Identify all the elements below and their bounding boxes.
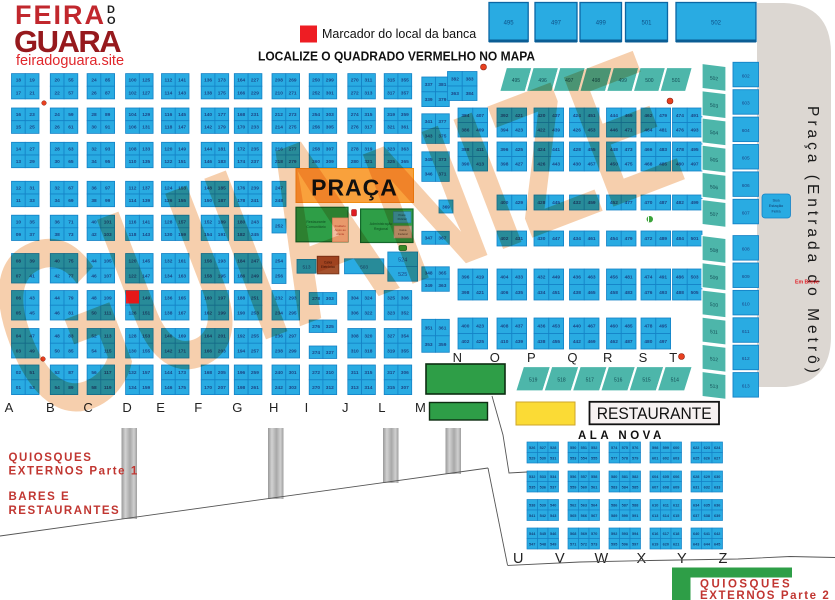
svg-text:571: 571 <box>570 543 576 547</box>
svg-text:497: 497 <box>691 162 699 168</box>
svg-text:547: 547 <box>529 543 535 547</box>
svg-text:604: 604 <box>652 475 659 479</box>
svg-text:628: 628 <box>693 475 699 479</box>
svg-text:513: 513 <box>710 383 719 390</box>
svg-text:BARES E: BARES E <box>9 491 71 503</box>
svg-text:517: 517 <box>586 378 595 384</box>
svg-text:143: 143 <box>178 90 186 96</box>
svg-text:630: 630 <box>714 475 720 479</box>
svg-text:400: 400 <box>461 324 469 330</box>
svg-text:453: 453 <box>552 324 560 330</box>
svg-text:612: 612 <box>673 504 679 508</box>
svg-text:618: 618 <box>673 532 679 536</box>
svg-text:497: 497 <box>551 21 562 27</box>
svg-text:487: 487 <box>625 339 633 345</box>
svg-text:563: 563 <box>581 504 587 508</box>
svg-text:638: 638 <box>704 514 710 518</box>
svg-text:435: 435 <box>515 290 523 296</box>
svg-text:505: 505 <box>691 290 699 296</box>
svg-text:474: 474 <box>644 275 652 281</box>
svg-text:501: 501 <box>641 21 652 27</box>
svg-text:13: 13 <box>16 159 22 165</box>
svg-text:30: 30 <box>55 159 61 165</box>
svg-text:26: 26 <box>55 125 61 131</box>
svg-text:629: 629 <box>704 475 710 479</box>
svg-text:566: 566 <box>581 514 587 518</box>
svg-text:467: 467 <box>588 324 596 330</box>
svg-text:501: 501 <box>691 236 699 242</box>
svg-text:570: 570 <box>591 532 597 536</box>
svg-text:18: 18 <box>16 78 22 84</box>
svg-text:533: 533 <box>540 475 546 479</box>
svg-text:622: 622 <box>693 446 699 450</box>
svg-text:229: 229 <box>251 90 259 96</box>
svg-text:602: 602 <box>742 73 750 79</box>
svg-text:434: 434 <box>537 290 545 296</box>
svg-text:576: 576 <box>632 446 638 450</box>
svg-text:567: 567 <box>591 514 597 518</box>
svg-text:600: 600 <box>673 446 679 450</box>
svg-text:22: 22 <box>55 90 61 96</box>
svg-text:89: 89 <box>105 112 111 118</box>
svg-text:577: 577 <box>611 457 617 461</box>
svg-text:601: 601 <box>652 457 658 461</box>
svg-text:532: 532 <box>529 475 535 479</box>
svg-text:465: 465 <box>588 290 596 296</box>
svg-text:451: 451 <box>552 290 560 296</box>
svg-text:599: 599 <box>663 446 669 450</box>
svg-text:588: 588 <box>632 504 638 508</box>
svg-text:102: 102 <box>128 90 136 96</box>
svg-text:549: 549 <box>550 543 556 547</box>
svg-text:458: 458 <box>610 290 618 296</box>
svg-text:Em Breve: Em Breve <box>795 280 819 286</box>
svg-text:511: 511 <box>710 329 718 336</box>
svg-text:17: 17 <box>16 90 22 96</box>
svg-text:615: 615 <box>673 514 679 518</box>
svg-text:437: 437 <box>515 324 523 330</box>
svg-text:625: 625 <box>693 457 699 461</box>
svg-text:582: 582 <box>632 475 638 479</box>
svg-text:N: N <box>453 350 462 365</box>
svg-text:586: 586 <box>611 504 617 508</box>
svg-text:131: 131 <box>142 125 150 131</box>
svg-text:28: 28 <box>55 146 61 152</box>
svg-text:503: 503 <box>710 103 719 110</box>
svg-text:Q: Q <box>567 350 577 365</box>
svg-text:528: 528 <box>550 446 556 450</box>
svg-text:484: 484 <box>676 236 684 242</box>
svg-text:561: 561 <box>591 486 597 490</box>
svg-text:127: 127 <box>142 90 150 96</box>
svg-text:573: 573 <box>591 543 597 547</box>
svg-text:506: 506 <box>710 184 719 191</box>
svg-text:541: 541 <box>529 514 535 518</box>
svg-text:460: 460 <box>610 324 618 330</box>
svg-text:639: 639 <box>714 514 720 518</box>
svg-text:Sua: Sua <box>772 198 780 203</box>
svg-text:620: 620 <box>663 543 669 547</box>
svg-text:116: 116 <box>165 112 173 118</box>
svg-text:559: 559 <box>570 486 576 490</box>
svg-text:501: 501 <box>672 78 681 84</box>
svg-text:O: O <box>490 350 500 365</box>
svg-text:491: 491 <box>691 113 699 119</box>
svg-text:166: 166 <box>237 90 245 96</box>
svg-text:512: 512 <box>710 356 719 363</box>
svg-text:474: 474 <box>676 113 684 119</box>
svg-text:423: 423 <box>476 324 484 330</box>
svg-text:546: 546 <box>550 532 556 536</box>
svg-text:112: 112 <box>165 78 173 84</box>
svg-text:550: 550 <box>570 446 576 450</box>
svg-text:545: 545 <box>540 532 546 536</box>
svg-text:313: 313 <box>364 90 372 96</box>
svg-text:502: 502 <box>711 21 722 27</box>
svg-text:596: 596 <box>622 543 628 547</box>
svg-text:125: 125 <box>142 78 150 84</box>
svg-text:529: 529 <box>529 457 535 461</box>
svg-text:481: 481 <box>625 275 633 281</box>
svg-text:315: 315 <box>364 370 372 376</box>
svg-text:469: 469 <box>588 339 596 345</box>
svg-text:608: 608 <box>742 247 750 253</box>
svg-text:632: 632 <box>704 486 710 490</box>
svg-text:436: 436 <box>573 275 581 281</box>
svg-text:Feira: Feira <box>771 209 781 214</box>
svg-text:495: 495 <box>691 147 699 153</box>
svg-text:623: 623 <box>704 446 710 450</box>
svg-text:606: 606 <box>742 183 750 189</box>
svg-text:503: 503 <box>691 275 699 281</box>
svg-text:502: 502 <box>710 75 719 82</box>
svg-text:617: 617 <box>663 532 669 536</box>
svg-text:23: 23 <box>29 112 35 118</box>
svg-text:575: 575 <box>622 446 628 450</box>
svg-text:518: 518 <box>557 378 566 384</box>
svg-text:607: 607 <box>652 486 658 490</box>
svg-text:118: 118 <box>165 125 173 131</box>
svg-text:311: 311 <box>351 370 359 376</box>
svg-text:514: 514 <box>671 378 680 384</box>
svg-text:410: 410 <box>500 339 508 345</box>
svg-text:93: 93 <box>105 146 111 152</box>
svg-text:594: 594 <box>632 532 639 536</box>
svg-text:578: 578 <box>622 457 628 461</box>
svg-text:584: 584 <box>622 486 629 490</box>
svg-text:feiradoguara.site: feiradoguara.site <box>16 53 124 69</box>
svg-text:438: 438 <box>573 290 581 296</box>
svg-text:605: 605 <box>742 156 750 162</box>
svg-text:509: 509 <box>710 275 719 282</box>
svg-text:495: 495 <box>504 21 515 27</box>
svg-text:537: 537 <box>550 486 556 490</box>
svg-text:562: 562 <box>570 504 576 508</box>
svg-text:25: 25 <box>29 125 35 131</box>
svg-text:542: 542 <box>540 514 546 518</box>
svg-text:85: 85 <box>105 78 111 84</box>
svg-text:580: 580 <box>611 475 617 479</box>
svg-text:587: 587 <box>622 504 628 508</box>
svg-text:307: 307 <box>401 385 409 391</box>
svg-text:28: 28 <box>91 112 97 118</box>
svg-text:S: S <box>639 350 648 365</box>
svg-text:57: 57 <box>68 90 74 96</box>
svg-text:621: 621 <box>673 543 679 547</box>
svg-text:145: 145 <box>178 112 186 118</box>
svg-text:15: 15 <box>16 125 22 131</box>
svg-text:624: 624 <box>714 446 721 450</box>
svg-text:637: 637 <box>693 514 699 518</box>
svg-text:593: 593 <box>622 532 628 536</box>
svg-text:486: 486 <box>676 275 684 281</box>
svg-text:616: 616 <box>652 532 658 536</box>
svg-text:314: 314 <box>364 385 372 391</box>
svg-text:565: 565 <box>570 514 576 518</box>
svg-text:489: 489 <box>659 236 667 242</box>
svg-text:476: 476 <box>644 290 652 296</box>
svg-text:548: 548 <box>540 543 546 547</box>
svg-text:544: 544 <box>529 532 536 536</box>
svg-text:558: 558 <box>591 475 597 479</box>
svg-text:640: 640 <box>693 532 699 536</box>
svg-text:V: V <box>555 551 565 567</box>
svg-text:H: H <box>269 400 278 415</box>
svg-text:555: 555 <box>591 457 597 461</box>
svg-text:Y: Y <box>677 551 687 567</box>
svg-text:598: 598 <box>652 446 658 450</box>
svg-text:I: I <box>305 400 309 415</box>
svg-text:227: 227 <box>251 78 259 84</box>
svg-text:645: 645 <box>714 543 720 547</box>
svg-text:317: 317 <box>387 370 395 376</box>
svg-text:361: 361 <box>438 325 446 331</box>
svg-text:438: 438 <box>537 339 545 345</box>
svg-text:634: 634 <box>693 504 700 508</box>
svg-text:A: A <box>5 400 14 415</box>
svg-text:552: 552 <box>591 446 597 450</box>
svg-text:497: 497 <box>659 339 667 345</box>
svg-text:539: 539 <box>540 504 546 508</box>
svg-text:272: 272 <box>351 90 359 96</box>
svg-text:485: 485 <box>625 324 633 330</box>
svg-text:X: X <box>637 551 647 567</box>
svg-text:635: 635 <box>704 504 710 508</box>
svg-text:553: 553 <box>570 457 576 461</box>
svg-text:27: 27 <box>29 146 35 152</box>
svg-text:609: 609 <box>742 274 750 280</box>
svg-text:175: 175 <box>218 90 226 96</box>
svg-text:530: 530 <box>540 457 546 461</box>
svg-text:456: 456 <box>610 275 618 281</box>
svg-text:29: 29 <box>29 159 35 165</box>
svg-text:619: 619 <box>652 543 658 547</box>
svg-text:106: 106 <box>128 125 136 131</box>
svg-text:455: 455 <box>552 339 560 345</box>
svg-text:M: M <box>415 400 426 415</box>
svg-text:21: 21 <box>29 90 35 96</box>
svg-text:527: 527 <box>540 446 546 450</box>
svg-text:535: 535 <box>529 486 535 490</box>
svg-text:12: 12 <box>16 185 22 191</box>
svg-text:59: 59 <box>68 112 74 118</box>
svg-text:560: 560 <box>581 486 587 490</box>
svg-text:583: 583 <box>611 486 617 490</box>
svg-text:643: 643 <box>693 543 699 547</box>
svg-text:488: 488 <box>676 290 684 296</box>
svg-text:436: 436 <box>537 324 545 330</box>
svg-text:493: 493 <box>691 128 699 134</box>
svg-text:612: 612 <box>742 356 750 362</box>
svg-text:462: 462 <box>610 339 618 345</box>
svg-text:554: 554 <box>581 457 588 461</box>
svg-text:440: 440 <box>573 324 581 330</box>
svg-text:507: 507 <box>710 211 719 218</box>
svg-text:408: 408 <box>500 324 508 330</box>
svg-text:24: 24 <box>55 112 61 118</box>
svg-text:585: 585 <box>632 486 638 490</box>
svg-text:641: 641 <box>704 532 710 536</box>
svg-text:140: 140 <box>204 112 212 118</box>
svg-text:557: 557 <box>581 475 587 479</box>
svg-text:164: 164 <box>237 78 245 84</box>
svg-text:568: 568 <box>570 532 576 536</box>
svg-text:311: 311 <box>365 78 373 84</box>
svg-text:Estação: Estação <box>769 203 784 208</box>
svg-text:613: 613 <box>742 384 750 390</box>
svg-text:516: 516 <box>614 378 623 384</box>
svg-text:270: 270 <box>351 78 359 84</box>
svg-text:312: 312 <box>326 385 334 391</box>
svg-text:504: 504 <box>710 130 719 137</box>
svg-text:EXTERNOS Parte 2: EXTERNOS Parte 2 <box>700 590 830 600</box>
svg-text:463: 463 <box>588 275 596 281</box>
svg-text:478: 478 <box>644 324 652 330</box>
svg-text:91: 91 <box>105 125 111 131</box>
svg-text:402: 402 <box>461 339 469 345</box>
svg-text:306: 306 <box>401 370 409 376</box>
svg-text:208: 208 <box>275 78 283 84</box>
svg-text:W: W <box>595 551 609 567</box>
svg-text:476: 476 <box>676 128 684 134</box>
svg-text:590: 590 <box>622 514 628 518</box>
svg-text:138: 138 <box>204 90 212 96</box>
svg-text:543: 543 <box>550 514 556 518</box>
svg-text:572: 572 <box>581 543 587 547</box>
svg-text:538: 538 <box>529 504 535 508</box>
svg-text:519: 519 <box>529 378 538 384</box>
svg-text:480: 480 <box>644 339 652 345</box>
svg-text:608: 608 <box>663 486 669 490</box>
svg-text:540: 540 <box>550 504 556 508</box>
svg-text:T: T <box>669 350 677 365</box>
svg-text:100: 100 <box>128 78 136 84</box>
svg-text:114: 114 <box>165 90 173 96</box>
svg-text:603: 603 <box>673 457 679 461</box>
svg-text:269: 269 <box>289 78 297 84</box>
svg-text:556: 556 <box>570 475 576 479</box>
svg-text:173: 173 <box>218 78 226 84</box>
svg-text:610: 610 <box>652 504 658 508</box>
svg-text:579: 579 <box>632 457 638 461</box>
svg-text:313: 313 <box>351 385 359 391</box>
svg-text:508: 508 <box>710 247 719 254</box>
svg-text:633: 633 <box>714 486 720 490</box>
svg-text:R: R <box>603 350 612 365</box>
svg-text:515: 515 <box>642 378 651 384</box>
svg-text:483: 483 <box>625 290 633 296</box>
svg-text:299: 299 <box>326 78 334 84</box>
svg-text:L: L <box>378 400 385 415</box>
svg-text:355: 355 <box>401 348 409 354</box>
svg-text:J: J <box>342 400 349 415</box>
svg-text:642: 642 <box>714 532 720 536</box>
svg-text:20: 20 <box>55 78 61 84</box>
svg-text:30: 30 <box>91 125 97 131</box>
svg-text:574: 574 <box>611 446 618 450</box>
svg-text:270: 270 <box>312 385 320 391</box>
svg-text:604: 604 <box>742 128 750 134</box>
svg-text:442: 442 <box>573 339 581 345</box>
svg-text:505: 505 <box>710 157 719 164</box>
svg-text:589: 589 <box>611 514 617 518</box>
svg-text:534: 534 <box>550 475 557 479</box>
svg-text:Praça (Entrada do Metrô): Praça (Entrada do Metrô) <box>804 106 821 377</box>
svg-text:510: 510 <box>710 302 719 309</box>
svg-text:551: 551 <box>581 446 587 450</box>
svg-text:606: 606 <box>673 475 679 479</box>
svg-text:359: 359 <box>438 342 446 348</box>
svg-text:355: 355 <box>401 78 409 84</box>
svg-text:Marcador do local da banca: Marcador do local da banca <box>322 27 476 41</box>
svg-text:603: 603 <box>742 101 750 107</box>
svg-text:613: 613 <box>652 514 658 518</box>
svg-text:26: 26 <box>91 90 97 96</box>
svg-text:592: 592 <box>611 532 617 536</box>
svg-text:425: 425 <box>476 339 484 345</box>
svg-text:581: 581 <box>622 475 628 479</box>
svg-text:87: 87 <box>105 90 111 96</box>
svg-text:353: 353 <box>425 342 433 348</box>
svg-text:55: 55 <box>68 78 74 84</box>
svg-text:595: 595 <box>611 543 617 547</box>
svg-text:526: 526 <box>529 446 535 450</box>
svg-text:491: 491 <box>659 275 667 281</box>
svg-text:315: 315 <box>387 385 395 391</box>
svg-text:611: 611 <box>663 504 669 508</box>
svg-text:14: 14 <box>16 146 22 152</box>
svg-text:65: 65 <box>68 159 74 165</box>
svg-text:RESTAURANTE: RESTAURANTE <box>597 405 712 423</box>
svg-text:16: 16 <box>16 112 22 118</box>
svg-text:564: 564 <box>591 504 598 508</box>
svg-text:136: 136 <box>204 78 212 84</box>
svg-text:61: 61 <box>68 125 74 131</box>
svg-text:QUIOSQUES: QUIOSQUES <box>700 579 792 591</box>
svg-text:ALA NOVA: ALA NOVA <box>578 430 665 442</box>
svg-text:351: 351 <box>425 325 433 331</box>
svg-text:P: P <box>527 350 536 365</box>
svg-text:610: 610 <box>742 301 750 307</box>
svg-text:626: 626 <box>704 457 710 461</box>
svg-text:627: 627 <box>714 457 720 461</box>
svg-text:439: 439 <box>515 339 523 345</box>
svg-text:493: 493 <box>659 290 667 296</box>
svg-text:597: 597 <box>632 543 638 547</box>
svg-text:614: 614 <box>663 514 670 518</box>
svg-text:129: 129 <box>142 112 150 118</box>
svg-text:611: 611 <box>742 329 750 335</box>
